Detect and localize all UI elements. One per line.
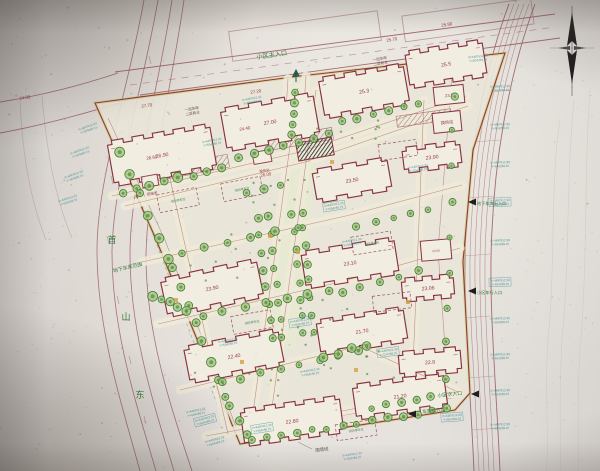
noise-dot xyxy=(75,235,76,236)
tree xyxy=(339,288,347,296)
tree xyxy=(236,375,244,383)
noise-dot xyxy=(18,242,20,244)
north-arrow-icon xyxy=(567,12,577,46)
tree-center xyxy=(306,292,310,296)
annotation-y-line: Y=504268.15 xyxy=(491,392,509,397)
tree-center xyxy=(305,244,308,247)
tree xyxy=(442,338,449,345)
noise-dot xyxy=(141,177,143,179)
tree-center xyxy=(322,356,326,360)
noise-dot xyxy=(335,409,337,411)
noise-dot xyxy=(455,381,457,383)
tree xyxy=(288,131,296,139)
noise-dot xyxy=(77,25,78,26)
annotation-y-line: Y=504268.15 xyxy=(491,126,509,131)
tree xyxy=(340,422,347,429)
tree xyxy=(353,115,361,123)
noise-dot xyxy=(217,61,218,62)
noise-dot xyxy=(49,429,51,431)
tree xyxy=(269,335,276,342)
shrub-dot xyxy=(377,119,379,121)
noise-dot xyxy=(224,63,226,65)
tree xyxy=(296,362,302,368)
shrub-dot xyxy=(277,379,279,381)
noise-dot xyxy=(238,105,240,107)
tree xyxy=(274,281,280,287)
noise-dot xyxy=(30,258,32,260)
survey-tick xyxy=(569,337,571,338)
tree-center xyxy=(427,209,429,211)
tree-center xyxy=(220,310,223,313)
existing-building-outline xyxy=(402,0,534,42)
tree xyxy=(295,225,301,231)
coordinate-annotation: X=4487612.33Y=504268.15 xyxy=(490,84,510,92)
shrub-dot xyxy=(270,379,272,381)
coordinate-annotation: X=4487612.33Y=504268.15 xyxy=(490,388,510,396)
noise-dot xyxy=(51,337,53,339)
tree-center xyxy=(312,137,315,140)
noise-dot xyxy=(147,239,149,241)
noise-dot xyxy=(34,389,35,390)
tree-center xyxy=(224,396,227,399)
tree xyxy=(264,212,272,220)
noise-dot xyxy=(437,453,438,454)
coordinate-annotation: X=4487612.33Y=504268.15 xyxy=(490,352,510,360)
noise-dot xyxy=(106,156,108,158)
tree-center xyxy=(280,318,282,320)
tree-center xyxy=(286,297,289,300)
tree-center xyxy=(267,148,270,151)
noise-dot xyxy=(352,294,353,295)
noise-dot xyxy=(78,411,79,412)
spot-elevation: 25.70 xyxy=(386,36,398,43)
tree xyxy=(398,398,406,406)
tree-center xyxy=(445,340,448,343)
noise-dot xyxy=(257,455,259,457)
noise-dot xyxy=(179,420,181,422)
tree xyxy=(352,223,359,230)
noise-dot xyxy=(50,73,52,75)
tree xyxy=(225,402,233,410)
tree-center xyxy=(203,246,206,249)
tree-center xyxy=(151,294,155,298)
west-road-dash xyxy=(129,356,131,364)
noise-dot xyxy=(204,409,206,411)
tree-center xyxy=(228,404,231,407)
tree-center xyxy=(449,272,451,274)
contour-line xyxy=(560,100,574,471)
shrub-dot xyxy=(378,126,380,128)
survey-tick xyxy=(47,381,49,382)
tree-center xyxy=(325,428,327,430)
tree-center xyxy=(372,113,374,115)
tree xyxy=(427,393,435,401)
tree-center xyxy=(313,331,315,333)
noise-dot xyxy=(362,280,364,282)
tree xyxy=(302,242,310,250)
noise-dot xyxy=(167,111,169,113)
tree-center xyxy=(262,269,265,272)
noise-dot xyxy=(164,374,166,376)
noise-dot xyxy=(306,191,308,193)
noise-dot xyxy=(571,361,572,362)
noise-dot xyxy=(183,88,185,90)
tree-center xyxy=(290,133,293,136)
tree xyxy=(292,89,299,96)
tree-center xyxy=(122,192,125,195)
tree xyxy=(268,317,275,324)
shrub-dot xyxy=(252,182,254,184)
tree-center xyxy=(147,184,151,188)
tree xyxy=(291,110,298,117)
tree-center xyxy=(266,436,269,439)
noise-dot xyxy=(412,459,414,461)
tree-center xyxy=(301,227,303,229)
noise-dot xyxy=(503,80,504,81)
noise-dot xyxy=(0,427,2,429)
noise-dot xyxy=(257,37,259,39)
tree xyxy=(265,146,274,155)
tree xyxy=(197,337,206,346)
flowerbed-dot xyxy=(174,298,178,302)
noise-dot xyxy=(262,213,263,214)
noise-dot xyxy=(228,247,229,248)
tree-center xyxy=(306,263,309,266)
tree-center xyxy=(341,291,344,294)
noise-dot xyxy=(71,397,72,398)
shrub-dot xyxy=(374,128,376,130)
tree xyxy=(319,353,328,362)
shrub-dot xyxy=(293,198,295,200)
survey-tick xyxy=(534,177,536,178)
shrub-dot xyxy=(323,364,325,366)
noise-dot xyxy=(158,242,160,244)
tree-center xyxy=(375,220,378,223)
residential-building: 22.8 xyxy=(398,346,462,377)
noise-dot xyxy=(110,439,111,440)
tree xyxy=(385,107,393,115)
annotation-y-line: Y=504268.15 xyxy=(491,320,509,325)
tree-center xyxy=(146,214,150,218)
noise-dot xyxy=(592,323,593,324)
vehicle-entrance-label: 小区车行入口 xyxy=(477,289,502,296)
noise-dot xyxy=(443,226,444,227)
noise-dot xyxy=(118,352,119,353)
tree xyxy=(203,168,211,176)
noise-dot xyxy=(121,347,123,349)
noise-dot xyxy=(36,348,37,349)
tree-center xyxy=(450,165,452,167)
tree-center xyxy=(293,113,296,116)
tree-center xyxy=(355,117,358,120)
tree xyxy=(148,291,158,301)
survey-tick xyxy=(583,328,585,329)
noise-dot xyxy=(385,141,387,143)
survey-tick xyxy=(72,331,74,332)
tree xyxy=(300,330,306,336)
noise-dot xyxy=(524,107,525,108)
tree-center xyxy=(337,352,340,355)
survey-tick xyxy=(531,318,533,319)
tree xyxy=(396,274,402,280)
shrub-dot xyxy=(270,185,272,187)
garage-extent-label: 地下车库范围 xyxy=(112,261,143,275)
west-road-line xyxy=(112,0,158,471)
noise-dot xyxy=(51,134,52,135)
tree-center xyxy=(355,225,358,228)
tree xyxy=(278,365,285,372)
tree-center xyxy=(271,249,274,252)
west-road-line xyxy=(97,0,144,471)
survey-tick xyxy=(40,286,42,287)
tree xyxy=(449,163,455,169)
tree xyxy=(278,432,285,439)
noise-dot xyxy=(195,354,197,356)
survey-tick xyxy=(525,397,527,398)
tree-center xyxy=(417,413,420,416)
noise-dot xyxy=(245,221,247,223)
noise-dot xyxy=(224,18,226,20)
tree-center xyxy=(262,187,265,190)
noise-dot xyxy=(201,409,203,411)
shrub-dot xyxy=(330,367,332,369)
noise-dot xyxy=(68,269,70,271)
road-name-char: 首 xyxy=(107,234,116,245)
tree-center xyxy=(239,378,242,381)
tree xyxy=(260,185,268,193)
tree xyxy=(373,218,380,225)
noise-dot xyxy=(91,307,92,308)
noise-dot xyxy=(391,414,392,415)
annotation-y-line: Y=504268.15 xyxy=(491,88,509,93)
east-road-tick xyxy=(464,254,490,256)
noise-dot xyxy=(39,307,40,308)
noise-dot xyxy=(52,326,53,327)
shrub-dot xyxy=(213,385,215,387)
tree-center xyxy=(280,368,283,371)
tree xyxy=(290,99,298,107)
survey-tick xyxy=(563,420,565,421)
tree xyxy=(391,215,397,221)
tree-center xyxy=(157,236,161,240)
tree xyxy=(255,232,261,238)
tree-center xyxy=(350,346,354,350)
tree xyxy=(224,239,231,246)
tree-center xyxy=(291,123,294,126)
west-arrow-icon xyxy=(558,46,570,50)
noise-dot xyxy=(72,127,73,128)
survey-tick xyxy=(32,293,34,294)
coordinate-annotation: X=4487612.33Y=504268.15 xyxy=(490,122,510,130)
noise-dot xyxy=(581,460,582,461)
shrub-dot xyxy=(281,329,283,331)
tree-center xyxy=(163,179,166,182)
noise-dot xyxy=(579,267,581,269)
noise-dot xyxy=(243,258,244,259)
flowerbed-dot xyxy=(296,250,300,254)
flowerbed-dot xyxy=(240,360,244,364)
tree-center xyxy=(297,226,300,229)
noise-dot xyxy=(268,384,269,385)
tree-center xyxy=(415,398,418,401)
shrub-dot xyxy=(251,195,253,197)
tree-center xyxy=(185,309,189,313)
noise-dot xyxy=(352,208,354,210)
service-building: 23.5 xyxy=(433,84,465,105)
tree-center xyxy=(244,305,247,308)
noise-dot xyxy=(110,436,111,437)
tree xyxy=(200,313,207,320)
tree xyxy=(400,413,408,421)
noise-dot xyxy=(38,443,40,445)
tree xyxy=(283,294,292,303)
tree xyxy=(305,276,312,283)
contour-line xyxy=(578,90,590,471)
tree-center xyxy=(355,423,357,425)
tree-center xyxy=(371,408,373,410)
shrub-dot xyxy=(189,264,191,266)
noise-dot xyxy=(182,366,183,367)
tree-center xyxy=(169,300,172,303)
tree-center xyxy=(279,184,281,186)
noise-dot xyxy=(128,291,130,293)
service-building: 24.50 xyxy=(420,239,452,262)
shrub-dot xyxy=(374,138,376,140)
survey-tick xyxy=(554,142,556,143)
noise-dot xyxy=(267,221,268,222)
noise-dot xyxy=(54,442,55,443)
tree xyxy=(297,280,304,287)
noise-dot xyxy=(36,448,38,450)
noise-dot xyxy=(49,238,51,240)
tree-center xyxy=(272,267,275,270)
tree xyxy=(347,344,356,353)
coordinate-annotation: X=4487612.33Y=504268.15 xyxy=(78,121,99,135)
noise-dot xyxy=(477,84,479,86)
noise-dot xyxy=(249,411,251,413)
noise-dot xyxy=(494,215,495,216)
noise-dot xyxy=(501,341,502,342)
noise-dot xyxy=(218,373,219,374)
survey-tick xyxy=(61,182,63,183)
tree-center xyxy=(445,407,448,410)
noise-dot xyxy=(86,326,87,327)
tree xyxy=(119,189,126,196)
tree-center xyxy=(310,314,313,317)
tree xyxy=(339,118,346,125)
tree xyxy=(288,211,295,218)
survey-tick xyxy=(558,299,560,300)
building-elevation-label: 22.8 xyxy=(425,360,436,367)
survey-tick xyxy=(62,130,64,131)
coordinate-annotation: X=4487612.33Y=504268.15 xyxy=(342,451,363,461)
noise-dot xyxy=(537,302,538,303)
noise-dot xyxy=(17,351,19,353)
noise-dot xyxy=(255,354,257,356)
shrub-dot xyxy=(329,318,331,320)
tree-center xyxy=(277,301,280,304)
tree-center xyxy=(328,289,331,292)
noise-dot xyxy=(340,128,341,129)
survey-tick xyxy=(40,273,42,274)
tree-center xyxy=(280,434,283,437)
south-arrow-icon xyxy=(567,50,577,84)
noise-dot xyxy=(526,179,528,181)
tree xyxy=(257,369,264,376)
noise-dot xyxy=(372,334,374,336)
survey-tick xyxy=(569,304,571,305)
noise-dot xyxy=(111,452,112,453)
tree-center xyxy=(387,109,390,112)
tree xyxy=(271,265,277,271)
building-elevation-label: 23.06 xyxy=(421,285,435,292)
noise-dot xyxy=(429,381,430,382)
tree-center xyxy=(342,424,345,427)
spot-elevation: 25.90 xyxy=(441,21,453,28)
tree xyxy=(200,243,208,251)
tree xyxy=(356,284,363,291)
tree-center xyxy=(179,286,182,289)
noise-dot xyxy=(66,7,68,9)
noise-dot xyxy=(367,442,368,443)
noise-dot xyxy=(289,344,291,346)
tree-center xyxy=(166,257,170,261)
tree xyxy=(235,154,243,162)
tree-center xyxy=(293,231,295,233)
tree xyxy=(299,209,306,216)
noise-dot xyxy=(341,310,343,312)
survey-tick xyxy=(552,384,554,385)
noise-dot xyxy=(53,258,54,259)
tree-center xyxy=(296,263,299,266)
coordinate-annotation: X=4487612.33Y=504268.15 xyxy=(490,422,510,430)
tree xyxy=(278,334,285,341)
shrub-dot xyxy=(304,344,306,346)
tree xyxy=(192,319,200,327)
noise-dot xyxy=(144,421,146,423)
east-road-tick xyxy=(474,140,500,142)
noise-dot xyxy=(38,381,39,382)
flowerbed-dot xyxy=(406,300,410,304)
noise-dot xyxy=(56,468,57,469)
tree-center xyxy=(264,301,267,304)
noise-dot xyxy=(137,402,138,403)
tree xyxy=(190,173,197,180)
noise-dot xyxy=(198,350,199,351)
shrub-dot xyxy=(273,204,275,206)
tree-center xyxy=(302,212,305,215)
tree-center xyxy=(226,241,229,244)
tree xyxy=(401,104,407,110)
tree-center xyxy=(417,103,420,106)
noise-dot xyxy=(75,300,77,302)
tree xyxy=(447,270,453,276)
noise-dot xyxy=(54,323,56,325)
tree xyxy=(168,263,176,271)
survey-tick xyxy=(574,403,576,404)
entrance-arrow-icon xyxy=(468,288,476,295)
tree-center xyxy=(453,95,456,98)
survey-tick xyxy=(68,413,70,414)
tree xyxy=(325,130,332,137)
tree xyxy=(384,413,392,421)
tree-center xyxy=(409,212,412,215)
noise-dot xyxy=(19,18,21,20)
tree-center xyxy=(195,321,198,324)
survey-tick xyxy=(29,99,31,100)
flowerbed-dot xyxy=(268,234,272,238)
noise-dot xyxy=(244,104,245,105)
